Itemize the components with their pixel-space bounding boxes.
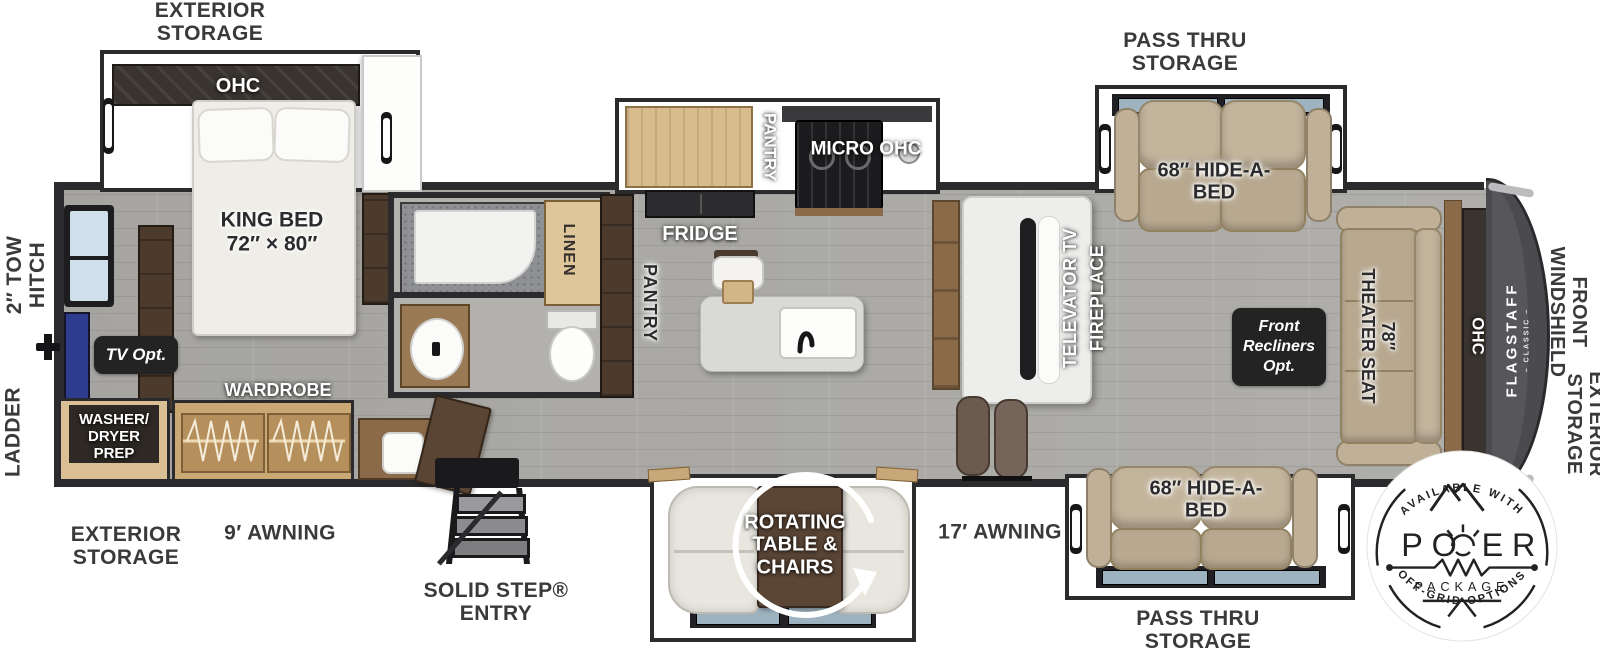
front-ohc-label: OHC [1468, 317, 1487, 355]
bedroom-tv [64, 312, 90, 408]
bedroom-closet-window [381, 112, 392, 164]
flagstaff-logo: FLAGSTAFF [1504, 282, 1521, 397]
rotating-table-label: ROTATING TABLE & CHAIRS [744, 511, 845, 578]
solid-step-label: SOLID STEP® ENTRY [424, 579, 569, 625]
entertainment-shelf [932, 200, 960, 390]
fridge [645, 190, 755, 218]
washer-dryer-label: WASHER/ DRYER PREP [79, 412, 149, 462]
sofa-bottom-seat-left [1110, 528, 1202, 570]
bath-vanity [400, 304, 470, 388]
exterior-storage-top-label: EXTERIOR STORAGE [155, 0, 266, 45]
televator-tv-slot [1020, 218, 1036, 380]
bedroom-left-dresser [138, 225, 174, 413]
linen-label: LINEN [559, 224, 577, 277]
pantry-left-label: PANTRY [640, 264, 660, 342]
sofa-bottom-arm-left [1086, 468, 1112, 568]
tow-hitch-icon [36, 334, 60, 360]
fridge-label: FRIDGE [662, 223, 738, 245]
chair-stand [962, 476, 1032, 481]
wardrobe-label: WARDROBE [225, 380, 332, 400]
wardrobe [172, 400, 354, 482]
theater-seat-back [1414, 228, 1442, 444]
sofa-top-arm-right [1306, 108, 1332, 222]
sofa-top-arm-left [1114, 108, 1140, 222]
front-recliners-badge: Front Recliners Opt. [1232, 308, 1326, 386]
entry-steps [450, 488, 526, 564]
pass-thru-bottom-label: PASS THRU STORAGE [1136, 607, 1259, 653]
exterior-storage-bottom-label: EXTERIOR STORAGE [71, 523, 182, 569]
sofa-top-left-window [1099, 124, 1111, 174]
bedroom-front-closet [362, 55, 422, 192]
front-console [1444, 200, 1462, 468]
flagstaff-classic-logo: – CLASSIC – [1524, 308, 1531, 372]
sofa-bottom-arm-right [1292, 468, 1318, 568]
entry-landing [435, 458, 519, 488]
theater-seat-label: 78″ THEATER SEAT [1358, 268, 1398, 403]
badge-power-left: PO [1401, 527, 1465, 563]
hanger-icon [269, 415, 345, 467]
bedroom-slide-left-window [103, 98, 114, 154]
power-package-badge: AVAILABLE WITH PO ER PACKAGE OFF-GRID OP… [1364, 448, 1560, 644]
kitchen-pantry-label: PANTRY [760, 113, 779, 181]
sofa-bottom-right-window [1338, 504, 1350, 554]
hide-a-bed-bottom-label: 68″ HIDE-A- BED [1150, 478, 1263, 523]
king-bed-label: KING BED 72″ × 80″ [221, 208, 324, 255]
sofa-bottom-seat-right [1200, 528, 1292, 570]
shower [400, 202, 546, 294]
micro-ohc-label: MICRO OHC [811, 138, 922, 159]
bed-pillow-left [197, 107, 275, 164]
fireplace-label: FIREPLACE [1087, 245, 1107, 352]
sofa-bottom-left-window [1070, 504, 1082, 554]
front-recliners-label: Front Recliners Opt. [1243, 317, 1315, 377]
front-windshield-label: FRONT WINDSHIELD [1546, 247, 1590, 378]
bath-divider-wall [394, 292, 550, 298]
tv-opt-badge: TV Opt. [94, 336, 178, 374]
awning-17-label: 17′ AWNING [938, 520, 1062, 543]
rear-window [64, 205, 114, 307]
stove [795, 120, 883, 210]
toilet [544, 310, 598, 384]
televator-tv-label: TELEVATOR TV [1060, 228, 1080, 368]
folding-chair [956, 396, 990, 476]
pass-thru-top-label: PASS THRU STORAGE [1123, 29, 1246, 75]
island-stool [710, 250, 762, 300]
kitchen-island [700, 296, 864, 372]
ladder-label: LADDER [1, 387, 24, 477]
badge-power-right: ER [1482, 527, 1545, 563]
bedroom-ohc-label: OHC [216, 75, 260, 97]
tow-hitch-label: 2″ TOW HITCH [3, 236, 49, 315]
exterior-storage-right-label: EXTERIOR STORAGE [1563, 371, 1600, 476]
hide-a-bed-top-label: 68″ HIDE-A- BED [1158, 160, 1271, 205]
kitchen-pantry-cabinet [625, 106, 753, 188]
bed-pillow-right [273, 107, 351, 164]
tv-opt-label: TV Opt. [106, 345, 166, 365]
folding-chair [994, 399, 1028, 479]
awning-9-label: 9′ AWNING [224, 521, 336, 544]
pantry-cabinet [600, 194, 634, 398]
faucet-icon [793, 315, 819, 355]
floorplan-canvas: OHC KING BED 72″ × 80″ TV Opt. WASHER/ D… [0, 0, 1600, 655]
hanger-icon [183, 415, 259, 467]
